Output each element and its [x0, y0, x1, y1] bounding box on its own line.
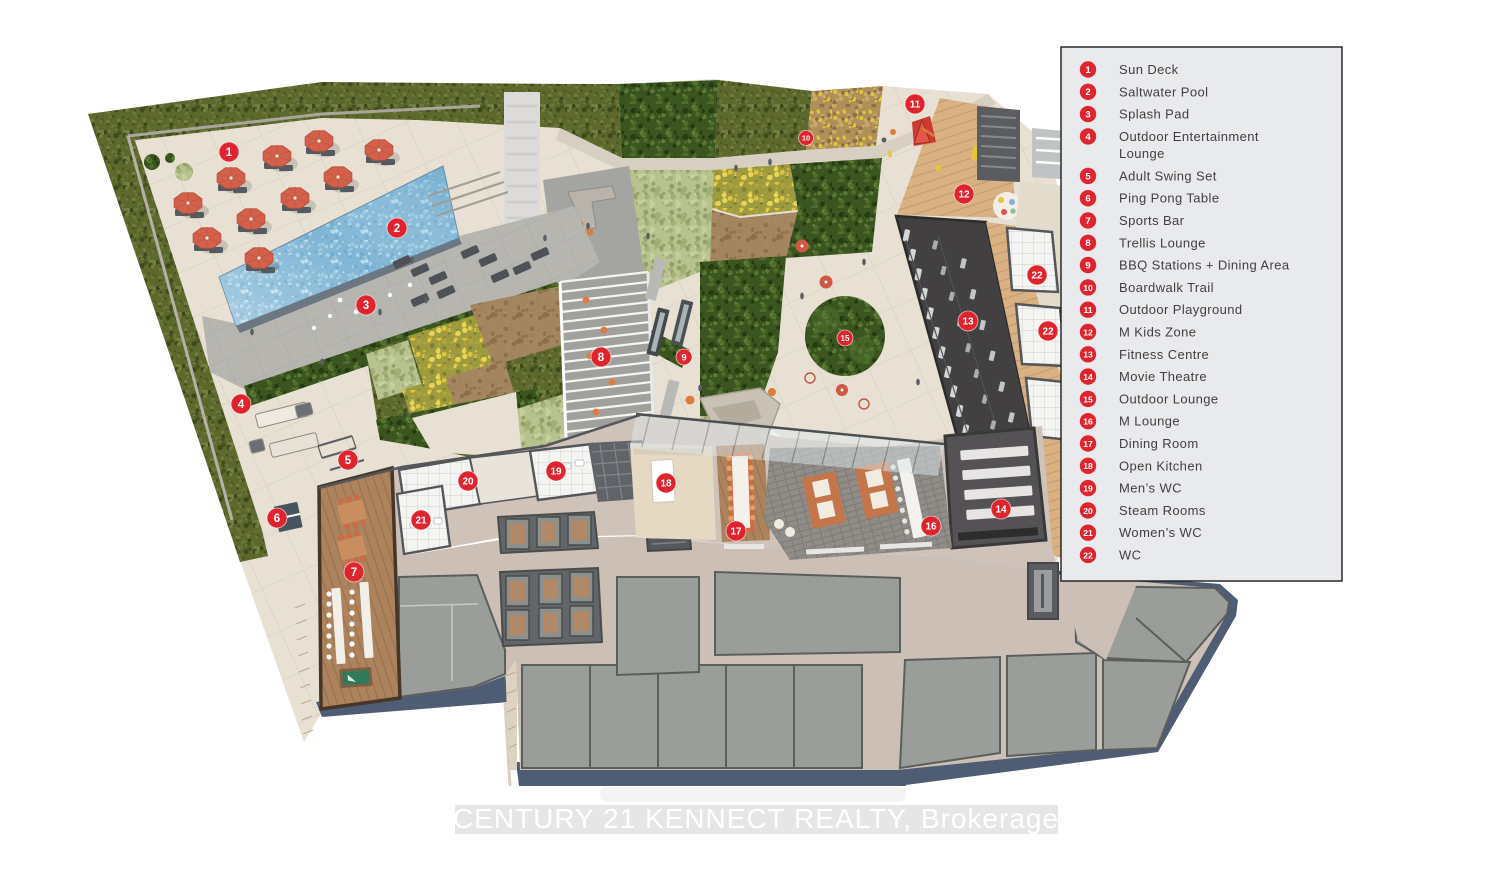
svg-text:Outdoor Entertainment: Outdoor Entertainment	[1119, 129, 1259, 144]
svg-text:4: 4	[1085, 132, 1091, 143]
svg-text:BBQ Stations + Dining Area: BBQ Stations + Dining Area	[1119, 258, 1290, 273]
svg-text:Women’s WC: Women’s WC	[1119, 525, 1202, 540]
svg-text:11: 11	[1083, 305, 1092, 315]
svg-text:1: 1	[226, 147, 233, 159]
svg-text:15: 15	[1083, 394, 1093, 404]
svg-text:6: 6	[274, 513, 280, 525]
svg-text:M Lounge: M Lounge	[1119, 414, 1180, 429]
svg-text:Movie Theatre: Movie Theatre	[1119, 369, 1207, 384]
svg-text:22: 22	[1031, 271, 1043, 282]
svg-text:20: 20	[1083, 506, 1093, 516]
svg-text:16: 16	[1083, 417, 1093, 427]
svg-text:8: 8	[598, 352, 605, 364]
svg-text:Lounge: Lounge	[1119, 146, 1165, 161]
svg-text:9: 9	[1085, 261, 1090, 272]
svg-text:12: 12	[1083, 327, 1093, 337]
svg-text:4: 4	[238, 399, 245, 411]
svg-text:18: 18	[1083, 461, 1093, 471]
svg-text:CENTURY 21 KENNECT REALTY, Bro: CENTURY 21 KENNECT REALTY, Brokerage	[453, 803, 1059, 834]
svg-text:18: 18	[660, 479, 672, 490]
svg-text:17: 17	[730, 527, 742, 538]
svg-text:Sun Deck: Sun Deck	[1119, 62, 1179, 77]
svg-text:5: 5	[345, 455, 352, 467]
svg-text:12: 12	[958, 190, 970, 201]
svg-text:10: 10	[802, 134, 810, 143]
svg-text:7: 7	[1085, 216, 1090, 227]
svg-text:WC: WC	[1119, 548, 1141, 563]
svg-text:5: 5	[1085, 171, 1091, 182]
svg-text:Adult Swing Set: Adult Swing Set	[1119, 168, 1217, 183]
svg-text:3: 3	[1085, 110, 1090, 121]
svg-text:Steam Rooms: Steam Rooms	[1119, 503, 1206, 518]
svg-text:14: 14	[1083, 372, 1093, 382]
svg-text:Men’s WC: Men’s WC	[1119, 481, 1182, 496]
svg-text:10: 10	[1083, 283, 1093, 293]
svg-text:Saltwater Pool: Saltwater Pool	[1119, 84, 1208, 99]
svg-text:Splash Pad: Splash Pad	[1119, 107, 1190, 122]
svg-text:21: 21	[1083, 528, 1093, 538]
svg-text:7: 7	[351, 567, 357, 579]
svg-text:14: 14	[995, 505, 1007, 516]
svg-text:19: 19	[550, 467, 562, 478]
svg-text:17: 17	[1083, 439, 1093, 449]
svg-text:2: 2	[1085, 87, 1090, 98]
svg-text:Boardwalk Trail: Boardwalk Trail	[1119, 280, 1214, 295]
svg-text:15: 15	[841, 334, 850, 343]
svg-text:6: 6	[1085, 194, 1090, 205]
svg-text:11: 11	[910, 100, 921, 111]
svg-text:Outdoor Lounge: Outdoor Lounge	[1119, 391, 1219, 406]
svg-text:22: 22	[1083, 550, 1093, 560]
svg-text:21: 21	[415, 516, 427, 527]
svg-text:8: 8	[1085, 238, 1090, 249]
svg-text:3: 3	[363, 300, 369, 312]
svg-text:16: 16	[925, 522, 937, 533]
svg-text:M Kids Zone: M Kids Zone	[1119, 325, 1196, 340]
svg-text:Ping Pong Table: Ping Pong Table	[1119, 191, 1219, 206]
svg-text:22: 22	[1042, 327, 1054, 338]
svg-text:13: 13	[962, 317, 974, 328]
svg-text:9: 9	[681, 352, 686, 362]
svg-text:20: 20	[462, 477, 474, 488]
svg-text:Fitness Centre: Fitness Centre	[1119, 347, 1209, 362]
svg-text:Open Kitchen: Open Kitchen	[1119, 458, 1203, 473]
svg-text:Outdoor Playground: Outdoor Playground	[1119, 302, 1243, 317]
svg-text:19: 19	[1083, 484, 1093, 494]
svg-text:2: 2	[394, 223, 400, 235]
svg-text:1: 1	[1085, 65, 1091, 76]
svg-text:Dining Room: Dining Room	[1119, 436, 1199, 451]
svg-text:Trellis Lounge: Trellis Lounge	[1119, 235, 1206, 250]
svg-text:Sports Bar: Sports Bar	[1119, 213, 1185, 228]
svg-text:13: 13	[1083, 350, 1093, 360]
